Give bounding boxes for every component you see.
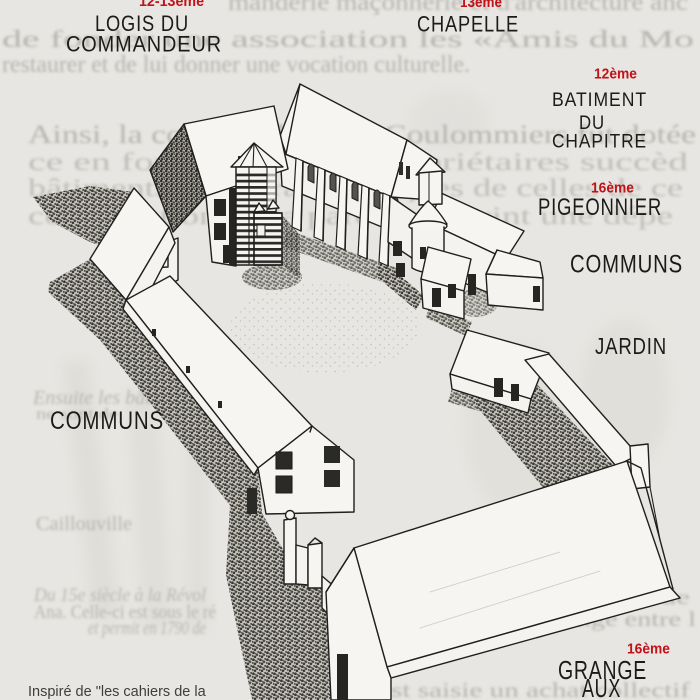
svg-text:BATIMENT: BATIMENT (552, 90, 647, 111)
svg-text:12ème: 12ème (594, 66, 637, 83)
svg-text:CHAPITRE: CHAPITRE (552, 132, 647, 153)
svg-text:13ème: 13ème (460, 0, 502, 11)
svg-text:Inspiré de "les cahiers de la: Inspiré de "les cahiers de la (28, 684, 207, 700)
svg-text:COMMUNS: COMMUNS (50, 407, 164, 435)
svg-text:AUX: AUX (582, 673, 621, 700)
svg-text:COMMUNS: COMMUNS (570, 251, 683, 279)
svg-text:Caillouville: Caillouville (36, 513, 132, 535)
svg-text:JARDIN: JARDIN (595, 333, 667, 359)
svg-text:PIGEONNIER: PIGEONNIER (538, 194, 662, 221)
svg-text:CHAPELLE: CHAPELLE (417, 12, 519, 37)
svg-text:COMMANDEUR: COMMANDEUR (66, 32, 222, 57)
svg-text:12-13ème: 12-13ème (139, 0, 204, 10)
svg-text:et permit en 1790 de: et permit en 1790 de (88, 618, 206, 639)
